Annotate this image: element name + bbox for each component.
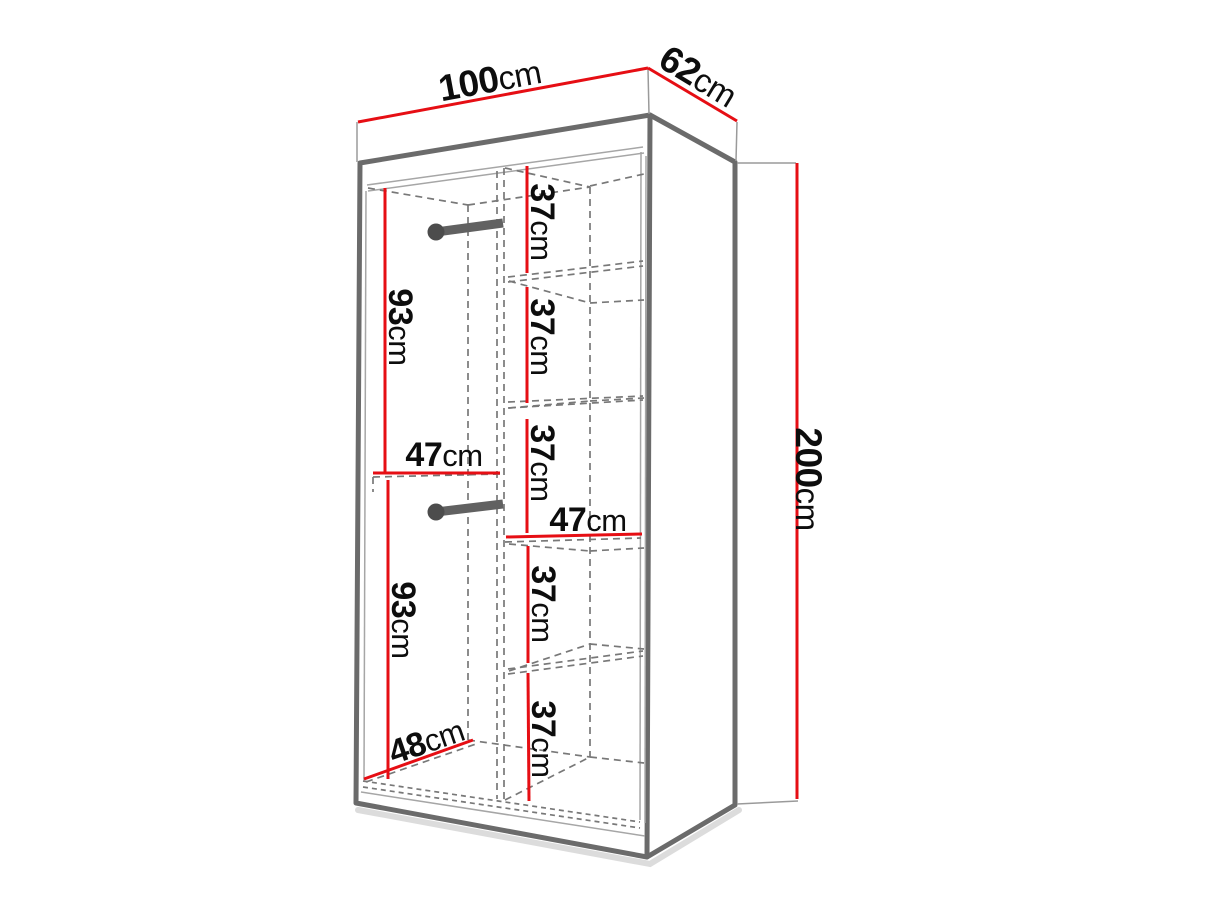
floor-front-edge-b — [363, 787, 640, 828]
shelf-label-5: 37cm — [524, 700, 562, 777]
dimension-lines — [358, 68, 797, 801]
width-label: 100cm — [435, 50, 544, 109]
shelf-3-depth-line — [509, 544, 590, 551]
wardrobe-diagram-canvas: 100cm 62cm 200cm 93cm 93cm 47cm 47cm 48c… — [0, 0, 1214, 911]
hanging-rod-upper-end — [428, 224, 445, 241]
depth-connector-right — [736, 122, 737, 161]
right-inner-wall-edge-a — [640, 152, 641, 820]
ceiling-back-edge-right — [590, 174, 644, 186]
shelf-4-depth-line — [509, 644, 590, 671]
hanging-rod-lower — [436, 504, 503, 512]
ceiling-edge-inner — [368, 153, 644, 191]
wardrobe-diagram: 100cm 62cm 200cm 93cm 93cm 47cm 47cm 48c… — [0, 0, 1214, 911]
shelf-label-1: 37cm — [523, 183, 561, 260]
ceiling-depth-line-left — [368, 188, 468, 205]
lower-hanging-label: 93cm — [384, 581, 422, 658]
shelf-label-3: 37cm — [523, 424, 561, 501]
shelf-label-2: 37cm — [523, 298, 561, 375]
shelf-4-back-edge — [590, 644, 644, 649]
wardrobe-front-right-edge — [647, 115, 650, 857]
shelf-label-4: 37cm — [524, 565, 562, 642]
depth-label: 62cm — [652, 37, 744, 115]
width-depth-connector-apex — [648, 69, 649, 114]
left-inner-wall-edge — [364, 191, 366, 780]
left-width-label: 47cm — [405, 436, 482, 474]
interior-depth-label: 48cm — [384, 711, 469, 772]
right-inner-wall-edge-b — [645, 156, 646, 823]
right-width-label: 47cm — [549, 501, 626, 539]
shelf-3-back-edge — [590, 548, 644, 551]
height-connector-bottom — [737, 801, 798, 804]
shelf-1-back-edge — [590, 300, 644, 303]
back-wall-bottom-edge-right — [590, 757, 644, 763]
hanging-rod-upper — [436, 223, 503, 232]
height-label: 200cm — [788, 427, 829, 530]
upper-hanging-label: 93cm — [381, 288, 419, 365]
hanging-rod-lower-end — [428, 504, 445, 521]
